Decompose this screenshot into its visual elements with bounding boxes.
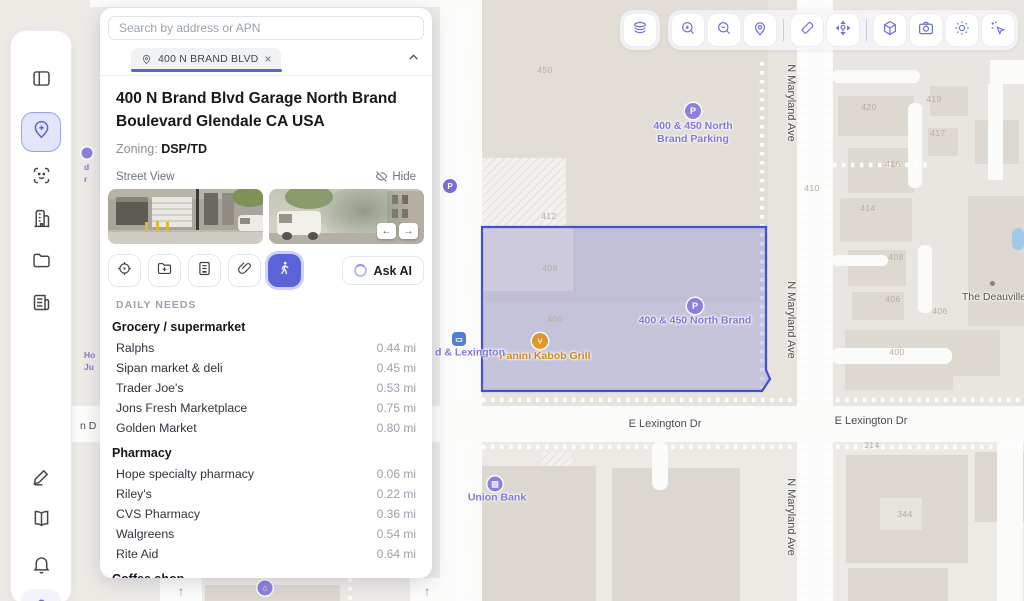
poi-row[interactable]: Sipan market & deli 0.45 mi xyxy=(116,358,416,378)
zoom-out-icon xyxy=(715,19,733,42)
sidebar-item-edit[interactable] xyxy=(21,459,61,499)
poi-distance: 0.36 mi xyxy=(377,507,416,521)
toolbar-group-layers xyxy=(620,10,660,50)
file-icon xyxy=(196,260,213,282)
street-view-nav: ← → xyxy=(377,223,418,239)
file-export-button[interactable] xyxy=(188,254,221,287)
grocery-rows: Ralphs 0.44 mi Sipan market & deli 0.45 … xyxy=(116,338,416,438)
walking-person-icon xyxy=(276,260,293,282)
paperclip-icon xyxy=(236,260,253,282)
pharmacy-rows: Hope specialty pharmacy 0.06 mi Riley's … xyxy=(116,464,416,564)
street-view-image-1[interactable] xyxy=(108,189,263,244)
brightness-button[interactable] xyxy=(945,13,979,47)
map-pin-plus-icon xyxy=(31,119,52,145)
poi-distance: 0.54 mi xyxy=(377,527,416,541)
property-title: 400 N Brand Blvd Garage North Brand Boul… xyxy=(116,87,406,133)
street-view-thumbnails: ← → xyxy=(108,189,424,244)
poi-distance: 0.45 mi xyxy=(377,361,416,375)
street-view-prev-button[interactable]: ← xyxy=(377,223,396,239)
pin-icon xyxy=(141,54,152,65)
poi-distance: 0.75 mi xyxy=(377,401,416,415)
eye-off-icon xyxy=(375,170,388,183)
folder-plus-icon xyxy=(156,260,173,282)
parking-marker-west[interactable]: P xyxy=(443,179,457,193)
pencil-icon xyxy=(31,466,52,492)
parking-icon-top[interactable]: P xyxy=(685,103,701,119)
layers-icon xyxy=(631,19,649,42)
zoning-row: Zoning: DSP/TD xyxy=(116,142,416,156)
parking-icon-mid[interactable]: P xyxy=(687,298,703,314)
poi-dot-marker xyxy=(990,281,995,286)
location-pin-icon xyxy=(751,19,769,42)
poi-distance: 0.22 mi xyxy=(377,487,416,501)
ask-ai-label: Ask AI xyxy=(374,264,412,278)
cube-3d-button[interactable] xyxy=(873,13,907,47)
eraser-button[interactable] xyxy=(790,13,824,47)
poi-row[interactable]: Golden Market 0.80 mi xyxy=(116,418,416,438)
toolbar-divider xyxy=(866,19,867,41)
sidebar-item-book[interactable] xyxy=(21,501,61,541)
move-pin-button[interactable] xyxy=(826,13,860,47)
map-toolbar xyxy=(620,10,1018,50)
folder-add-button[interactable] xyxy=(148,254,181,287)
map-fragment-road: n D xyxy=(80,420,96,432)
category-coffee: Coffee shop xyxy=(112,572,416,578)
restaurant-icon[interactable]: ⑂ xyxy=(532,333,548,349)
small-poi-icon xyxy=(82,148,93,159)
poi-name: CVS Pharmacy xyxy=(116,507,200,521)
poi-name: Hope specialty pharmacy xyxy=(116,467,254,481)
zoom-in-button[interactable] xyxy=(671,13,705,47)
poi-row[interactable]: Walgreens 0.54 mi xyxy=(116,524,416,544)
bank-icon[interactable]: ▤ xyxy=(488,477,503,492)
collapse-chevron-icon[interactable] xyxy=(407,51,420,69)
sidebar-item-parcel-pin[interactable] xyxy=(21,112,61,152)
eraser-icon xyxy=(798,19,816,42)
poi-name: Rite Aid xyxy=(116,547,158,561)
poi-name: Golden Market xyxy=(116,421,197,435)
news-doc-icon xyxy=(31,292,52,318)
zoom-out-button[interactable] xyxy=(707,13,741,47)
map-layers-button[interactable] xyxy=(623,13,657,47)
hide-label: Hide xyxy=(392,171,416,183)
zoning-value: DSP/TD xyxy=(161,142,207,156)
poi-name: Riley's xyxy=(116,487,152,501)
poi-name: Walgreens xyxy=(116,527,174,541)
location-pin-button[interactable] xyxy=(743,13,777,47)
target-icon xyxy=(116,260,133,282)
toolbar-group-tools xyxy=(668,10,1018,50)
street-view-label: Street View xyxy=(116,171,175,183)
panel-left-icon xyxy=(31,68,52,94)
tab-property[interactable]: 400 N BRAND BLVD × xyxy=(131,48,281,70)
attachment-button[interactable] xyxy=(228,254,261,287)
transit-icon[interactable]: ▭ xyxy=(452,332,466,346)
user-icon xyxy=(31,596,52,601)
category-pharmacy: Pharmacy xyxy=(112,446,416,460)
cursor-sparkle-icon xyxy=(989,19,1007,42)
category-grocery: Grocery / supermarket xyxy=(112,320,416,334)
ask-ai-button[interactable]: Ask AI xyxy=(342,256,424,285)
locate-target-button[interactable] xyxy=(108,254,141,287)
sidebar-item-folder[interactable] xyxy=(21,243,61,283)
street-view-image-2[interactable]: ← → xyxy=(269,189,424,244)
folder-icon xyxy=(31,250,52,276)
toolbar-divider xyxy=(783,19,784,41)
move-pin-icon xyxy=(834,19,852,42)
tab-label: 400 N BRAND BLVD xyxy=(158,53,258,65)
poi-row[interactable]: Rite Aid 0.64 mi xyxy=(116,544,416,564)
app-root: { "panel": { "search": { "placeholder": … xyxy=(0,0,1024,601)
book-open-icon xyxy=(31,508,52,534)
tab-close-icon[interactable]: × xyxy=(264,53,271,65)
sidebar-item-building[interactable] xyxy=(21,201,61,241)
sidebar-item-account[interactable] xyxy=(21,589,61,601)
camera-icon xyxy=(917,19,935,42)
poi-distance: 0.64 mi xyxy=(377,547,416,561)
tab-bar: 400 N BRAND BLVD × xyxy=(100,48,432,76)
search-input[interactable] xyxy=(108,16,424,40)
action-buttons-row: Ask AI xyxy=(108,254,424,287)
cursor-sparkle-button[interactable] xyxy=(981,13,1015,47)
poi-distance: 0.80 mi xyxy=(377,421,416,435)
zoom-in-icon xyxy=(679,19,697,42)
ai-spinner-icon xyxy=(354,264,367,277)
walk-distance-button[interactable] xyxy=(268,254,301,287)
map-fragment-c: Ho xyxy=(84,350,95,360)
poi-row[interactable]: Riley's 0.22 mi xyxy=(116,484,416,504)
poi-row[interactable]: Ralphs 0.44 mi xyxy=(116,338,416,358)
poi-row[interactable]: Trader Joe's 0.53 mi xyxy=(116,378,416,398)
poi-name: Sipan market & deli xyxy=(116,361,223,375)
sidebar-item-panel-toggle[interactable] xyxy=(21,61,61,101)
sidebar-item-face-scan[interactable] xyxy=(21,158,61,198)
sun-icon xyxy=(953,19,971,42)
poi-name: Jons Fresh Marketplace xyxy=(116,401,247,415)
building-icon xyxy=(31,208,52,234)
street-view-header: Street View Hide xyxy=(116,170,416,183)
hotel-icon[interactable]: ⌂ xyxy=(258,581,273,596)
poi-name: Trader Joe's xyxy=(116,381,184,395)
property-panel: 400 N BRAND BLVD × 400 N Brand Blvd Gara… xyxy=(100,8,432,578)
poi-row[interactable]: CVS Pharmacy 0.36 mi xyxy=(116,504,416,524)
hide-street-view-button[interactable]: Hide xyxy=(375,170,416,183)
camera-button[interactable] xyxy=(909,13,943,47)
zoning-label: Zoning: xyxy=(116,142,158,156)
cube-3d-icon xyxy=(881,19,899,42)
tab-active-underline xyxy=(131,69,282,72)
poi-row[interactable]: Hope specialty pharmacy 0.06 mi xyxy=(116,464,416,484)
sidebar-item-news-doc[interactable] xyxy=(21,285,61,325)
sidebar xyxy=(10,30,72,601)
bell-icon xyxy=(31,554,52,580)
map-fragment-d: Ju xyxy=(84,362,94,372)
poi-distance: 0.44 mi xyxy=(377,341,416,355)
face-scan-icon xyxy=(31,165,52,191)
map-fragment-a: d xyxy=(84,162,89,172)
poi-distance: 0.06 mi xyxy=(377,467,416,481)
map-fragment-b: r xyxy=(84,174,87,184)
poi-distance: 0.53 mi xyxy=(377,381,416,395)
poi-name: Ralphs xyxy=(116,341,154,355)
street-view-next-button[interactable]: → xyxy=(399,223,418,239)
poi-row[interactable]: Jons Fresh Marketplace 0.75 mi xyxy=(116,398,416,418)
daily-needs-header: DAILY NEEDS xyxy=(116,299,416,311)
daily-needs-list: DAILY NEEDS Grocery / supermarket Ralphs… xyxy=(116,299,416,578)
sidebar-item-notifications[interactable] xyxy=(21,547,61,587)
